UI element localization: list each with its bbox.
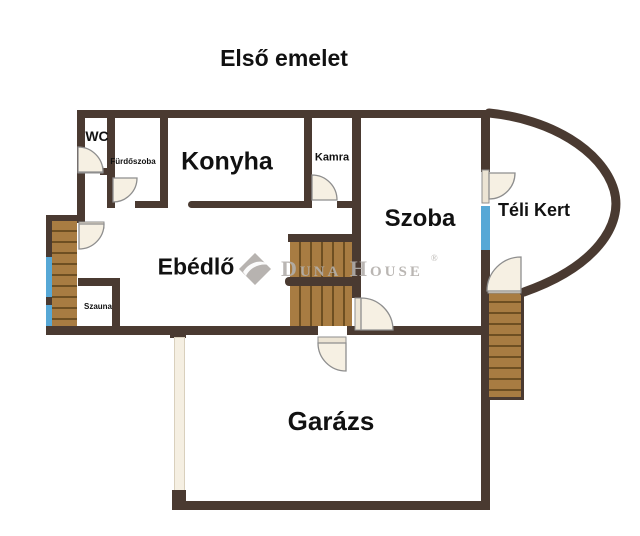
watermark: Duna House ® [237,251,438,287]
wall-bathroom-right [160,118,168,208]
wall-pantry-bottom-stub [337,201,352,208]
wall-right-stairs-edge [521,292,524,400]
wall-garage-left-light [174,337,185,492]
page-title: Első emelet [220,45,348,72]
door-arc-bathroom [113,178,137,202]
wall-left-upper [77,110,85,223]
wall-kitchen-bottom [188,201,308,208]
wall-wc-bottom-stub [100,168,108,175]
wall-top [77,110,490,118]
room-label-ebedlo: Ebédlő [158,256,235,279]
door-leaf-garage [318,337,346,343]
door-arc-pantry [312,175,337,200]
room-label-wc: WC [85,129,108,143]
floor-plan: Első emelet [0,0,640,536]
room-label-telikert: Téli Kert [498,201,570,219]
staircase-left [52,221,77,326]
room-label-furdoszoba: Fürdőszoba [110,158,155,166]
room-label-szauna: Szauna [84,303,112,311]
wall-garage-bottom [173,501,490,510]
door-leaf-telikert [482,170,489,203]
wall-right-stairs-bottom-edge [489,397,524,400]
staircase-right [489,292,523,399]
wall-center-stairs-top [288,234,354,242]
door-arc-exterior-stairs [487,257,521,291]
wall-pantry-left [304,118,312,208]
door-arc-telikert [489,173,515,199]
door-arc-hall-stairs [79,224,104,249]
watermark-registered: ® [431,253,438,263]
wall-sauna-right [112,278,120,326]
door-arc-garage [318,343,346,371]
wall-right-upper [481,110,490,172]
room-label-szoba: Szoba [385,207,456,231]
room-label-garazs: Garázs [288,408,375,434]
room-label-konyha: Konyha [181,150,273,175]
room-label-kamra: Kamra [315,153,349,164]
window-szoba-telikert [481,206,490,250]
dunahouse-logo-icon [237,251,273,287]
wall-bathroom-bottom-right [135,201,168,208]
wall-bottom-right [347,326,490,335]
wall-bathroom-bottom-left [107,201,114,208]
watermark-brand: Duna House [281,256,423,282]
